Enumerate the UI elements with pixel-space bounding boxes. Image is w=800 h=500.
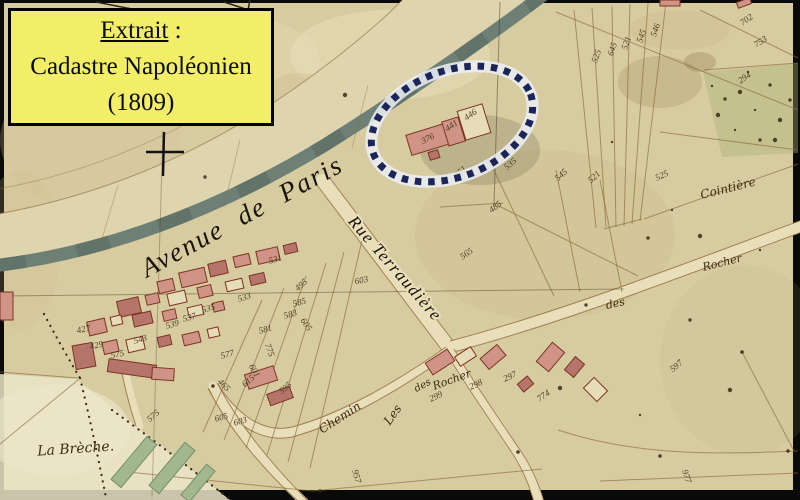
speck: [688, 318, 691, 321]
building: [197, 285, 213, 299]
speck: [788, 98, 791, 101]
building: [207, 327, 220, 338]
speck: [778, 118, 782, 122]
legend-title-word: Extrait: [100, 17, 168, 44]
building: [145, 293, 160, 306]
speck: [728, 388, 732, 392]
speck: [584, 303, 587, 306]
speck: [716, 113, 720, 117]
legend-line-1: Extrait :: [100, 13, 181, 49]
speck: [734, 129, 736, 131]
speck: [768, 83, 771, 86]
speck: [646, 236, 649, 239]
speck: [611, 141, 613, 143]
speck: [203, 175, 206, 178]
speck: [773, 138, 777, 142]
building: [157, 335, 172, 348]
legend-colon: :: [168, 17, 181, 44]
speck: [759, 249, 761, 251]
speck: [758, 138, 761, 141]
speck: [698, 234, 702, 238]
speck: [343, 93, 347, 97]
speck: [639, 414, 641, 416]
speck: [558, 386, 562, 390]
building: [152, 367, 175, 381]
speck: [754, 109, 756, 111]
map-legend-box: Extrait : Cadastre Napoléonien (1809): [8, 8, 274, 126]
cadastre-map-screenshot: 7027532945256455215455463764414464515355…: [0, 0, 800, 500]
building: [110, 315, 123, 326]
legend-line-3: (1809): [108, 85, 175, 121]
speck: [711, 85, 713, 87]
legend-line-2: Cadastre Napoléonien: [30, 49, 251, 85]
speck: [671, 209, 673, 211]
building: [0, 292, 13, 320]
speck: [738, 90, 742, 94]
speck: [723, 97, 726, 100]
building: [660, 0, 680, 6]
